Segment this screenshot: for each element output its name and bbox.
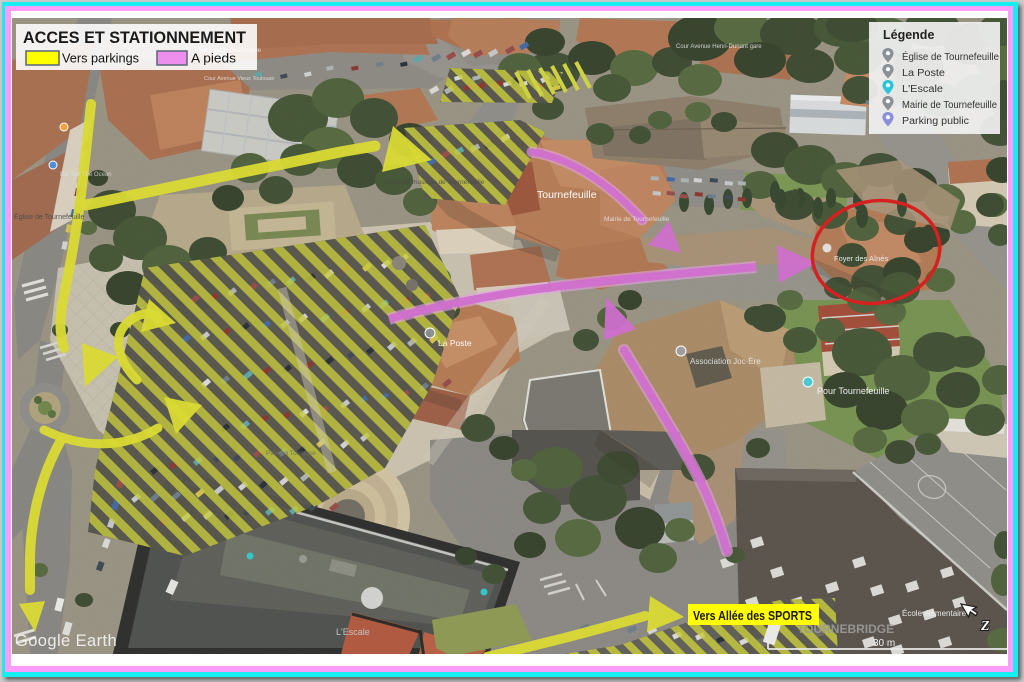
svg-text:L'Escale: L'Escale <box>902 84 943 95</box>
svg-text:Cour Avenue Henri-Dunant gare: Cour Avenue Henri-Dunant gare <box>676 44 762 50</box>
svg-text:A pieds: A pieds <box>191 52 236 66</box>
svg-text:Google Earth: Google Earth <box>15 632 117 650</box>
svg-text:École de musique de Tournefeui: École de musique de Tournefeuille <box>385 177 485 186</box>
svg-text:ACCES ET STATIONNEMENT: ACCES ET STATIONNEMENT <box>23 28 247 47</box>
svg-text:Église de Tournefeuille: Église de Tournefeuille <box>902 50 999 63</box>
svg-text:La Poste: La Poste <box>438 338 472 348</box>
svg-text:Parking Toulouse: Parking Toulouse <box>266 450 316 457</box>
svg-text:École élémentaire: École élémentaire <box>902 609 967 618</box>
svg-text:Pour Tournefeuille: Pour Tournefeuille <box>817 386 889 396</box>
svg-text:Vers Allée des SPORTS: Vers Allée des SPORTS <box>693 608 812 623</box>
svg-text:Église de Tournefeuille: Église de Tournefeuille <box>14 212 84 221</box>
svg-text:Bar Sur The Ocean: Bar Sur The Ocean <box>60 172 112 178</box>
svg-text:Légende: Légende <box>883 28 934 42</box>
svg-text:Tournefeuille: Tournefeuille <box>537 189 597 201</box>
svg-text:Mairie de Tournefeuille: Mairie de Tournefeuille <box>902 100 997 111</box>
svg-text:Parking public: Parking public <box>902 116 969 127</box>
svg-text:Vers parkings: Vers parkings <box>62 52 139 66</box>
svg-text:30 m: 30 m <box>873 638 895 649</box>
svg-text:Cour Avenue Vieux Toulouse: Cour Avenue Vieux Toulouse <box>204 76 274 82</box>
svg-text:Association Joc-Ère: Association Joc-Ère <box>690 357 761 366</box>
svg-text:Foyer des Aînés: Foyer des Aînés <box>834 254 888 263</box>
svg-text:Z: Z <box>980 619 990 634</box>
svg-text:L'Escale: L'Escale <box>336 627 370 637</box>
svg-text:Mairie de Tournefeuille: Mairie de Tournefeuille <box>604 216 670 223</box>
svg-text:La Poste: La Poste <box>902 68 945 79</box>
